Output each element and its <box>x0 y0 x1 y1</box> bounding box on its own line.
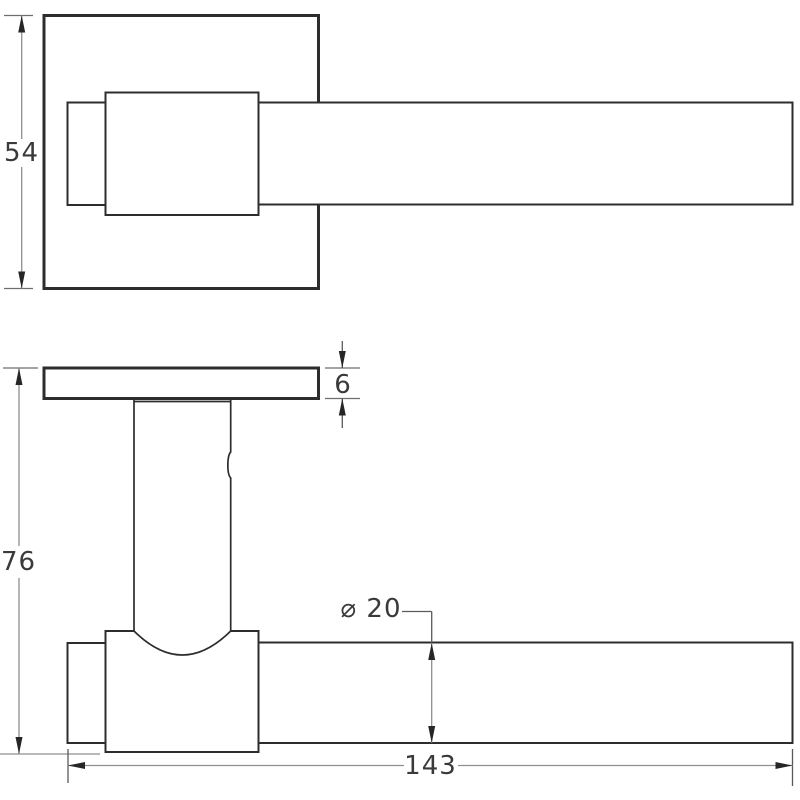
side-elevation-view <box>44 368 793 752</box>
dim-76-arrow-down-icon <box>16 737 23 754</box>
plan-view <box>44 16 793 289</box>
side-neck-cope-curve <box>134 631 231 655</box>
dim-76-arrow-up-icon <box>16 368 23 385</box>
side-lever-bar <box>259 643 793 744</box>
dim-54-arrow-down-icon <box>18 272 25 289</box>
side-lever-tail <box>68 643 106 743</box>
dim-label-overall-length: 143 <box>404 753 457 779</box>
dim-label-projection: 76 <box>1 549 36 575</box>
dim-54-arrow-up-icon <box>18 16 25 33</box>
plan-lever-bar <box>259 103 793 205</box>
side-neck-right <box>228 399 231 632</box>
plan-lever-tail <box>68 103 106 206</box>
dim-143-arrow-right-icon <box>776 762 793 769</box>
side-rose-plate <box>44 368 319 399</box>
dim-label-bar-diameter: ⌀ 20 <box>340 596 401 622</box>
technical-drawing-canvas: 54 76 6 ⌀ 20 143 <box>0 0 800 800</box>
plan-lever-boss <box>106 93 259 216</box>
dim-6-arrow-down-icon <box>339 351 346 368</box>
drawing-linework <box>0 0 800 800</box>
dim-label-rose-size: 54 <box>4 140 39 166</box>
side-lever-boss <box>106 631 259 752</box>
dim-143-arrow-left-icon <box>68 762 85 769</box>
dim-label-rose-thickness: 6 <box>334 372 352 398</box>
dim-6-arrow-up-icon <box>339 399 346 416</box>
